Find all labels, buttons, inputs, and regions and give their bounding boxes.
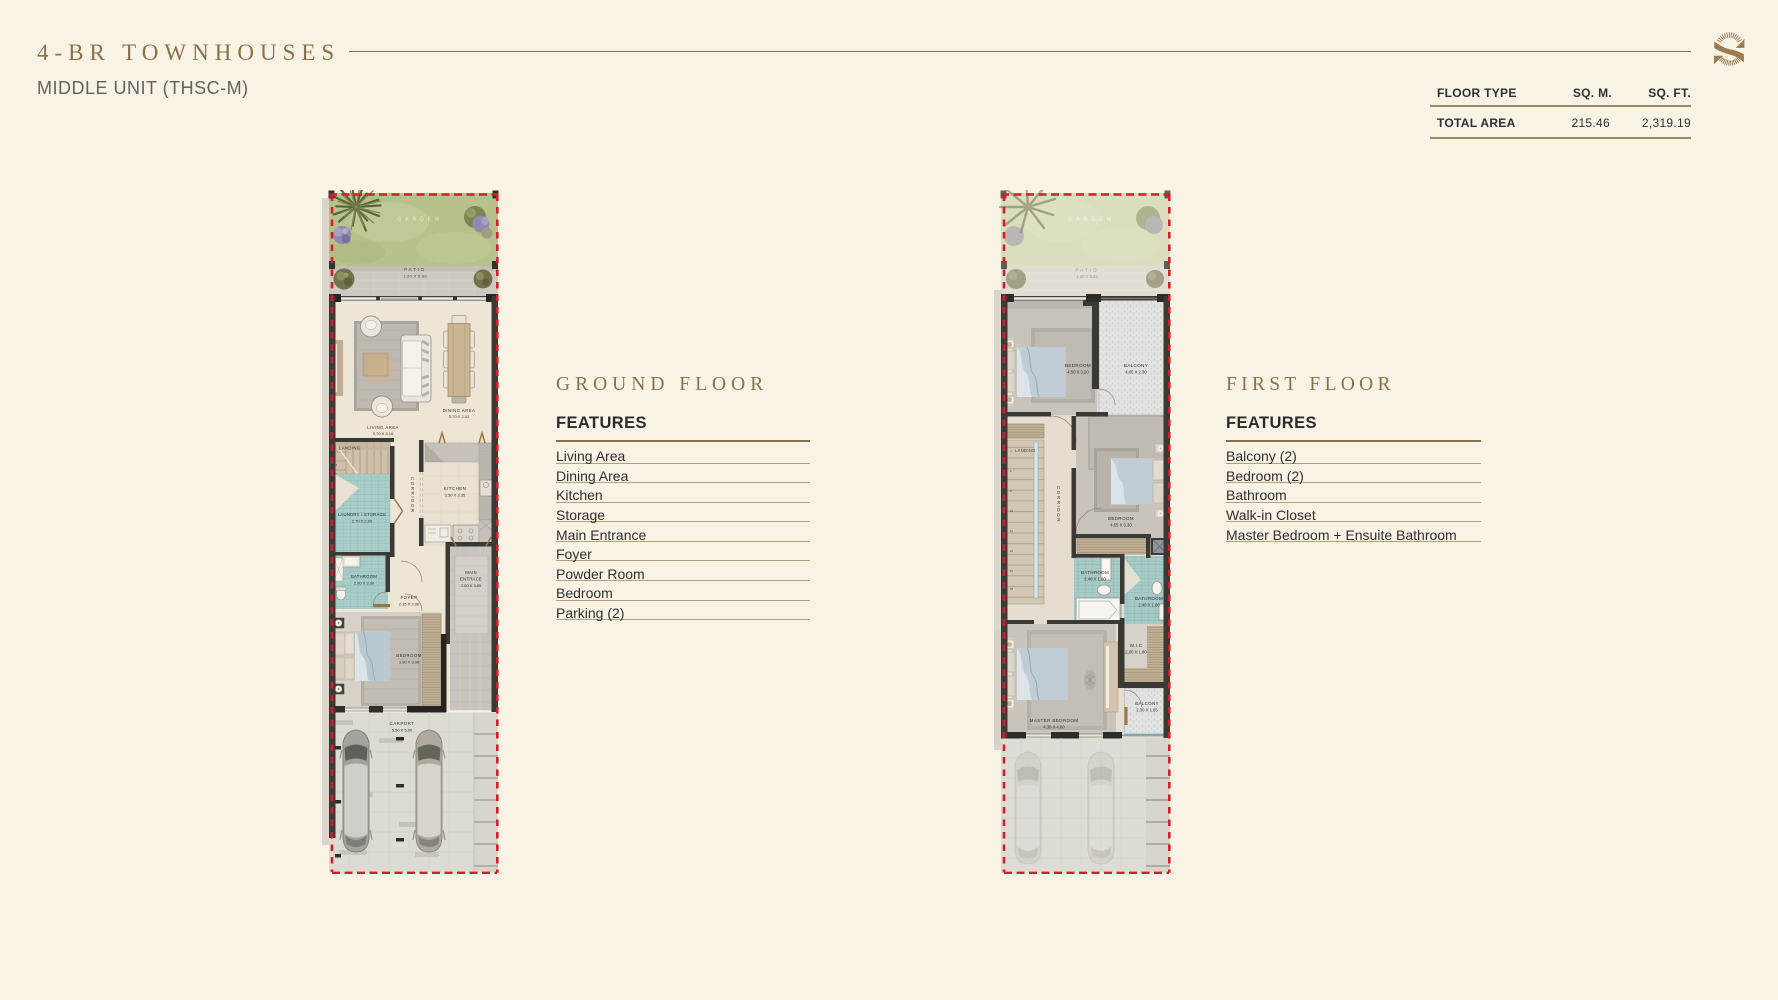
- svg-text:5.70 X 3.18: 5.70 X 3.18: [373, 431, 394, 436]
- svg-text:3.90 X 3.90: 3.90 X 3.90: [399, 660, 420, 665]
- svg-text:CORRIDOR: CORRIDOR: [410, 477, 415, 514]
- svg-text:BEDROOM: BEDROOM: [396, 653, 422, 658]
- svg-text:DINING AREA: DINING AREA: [443, 408, 476, 413]
- svg-text:2.70 X 2.00: 2.70 X 2.00: [352, 519, 373, 524]
- svg-text:BALCONY: BALCONY: [1135, 701, 1159, 706]
- svg-text:LANDING: LANDING: [339, 446, 360, 451]
- svg-text:PATIO: PATIO: [404, 267, 426, 272]
- svg-text:4.50 X 3.20: 4.50 X 3.20: [1067, 370, 1089, 375]
- svg-text:LIVING AREA: LIVING AREA: [367, 425, 399, 430]
- svg-text:12: 12: [1010, 529, 1014, 533]
- svg-text:2.40 X 1.60: 2.40 X 1.60: [1138, 603, 1160, 608]
- svg-text:5.70 X 2.42: 5.70 X 2.42: [449, 414, 470, 419]
- svg-text:MAIN: MAIN: [465, 570, 477, 575]
- svg-text:10: 10: [1010, 509, 1014, 513]
- svg-text:2.00 X 2.00: 2.00 X 2.00: [354, 581, 375, 586]
- svg-text:GARDEN: GARDEN: [397, 217, 442, 223]
- svg-text:CORRIDOR: CORRIDOR: [1056, 486, 1061, 523]
- svg-text:1.20 X 5.90: 1.20 X 5.90: [403, 274, 427, 279]
- svg-text:4.65 X 2.30: 4.65 X 2.30: [1125, 370, 1147, 375]
- svg-text:GARDEN: GARDEN: [1068, 217, 1115, 223]
- svg-text:BATHROOM: BATHROOM: [351, 574, 377, 579]
- svg-text:BATHROOM: BATHROOM: [1081, 570, 1109, 575]
- svg-text:LAUNDRY / STORAGE: LAUNDRY / STORAGE: [338, 512, 386, 517]
- svg-text:CARPORT: CARPORT: [390, 721, 415, 726]
- svg-text:BEDROOM: BEDROOM: [1108, 516, 1134, 521]
- svg-text:KITCHEN: KITCHEN: [444, 486, 467, 491]
- svg-text:2.15 X 2.00: 2.15 X 2.00: [399, 602, 420, 607]
- svg-text:BALCONY: BALCONY: [1124, 363, 1148, 368]
- svg-text:BATHROOM: BATHROOM: [1135, 596, 1163, 601]
- svg-text:5.50 X 5.00: 5.50 X 5.00: [392, 728, 413, 733]
- svg-text:ENTRACE: ENTRACE: [460, 577, 482, 582]
- svg-text:2.00 X 5.85: 2.00 X 5.85: [461, 583, 482, 588]
- svg-text:1.20 X 5.62: 1.20 X 5.62: [1076, 274, 1098, 279]
- svg-text:4.30 X 4.00: 4.30 X 4.00: [1043, 725, 1065, 730]
- svg-text:16: 16: [1010, 569, 1014, 573]
- svg-text:3.50 X 2.35: 3.50 X 2.35: [445, 493, 466, 498]
- svg-text:LANDING: LANDING: [1015, 448, 1036, 453]
- svg-text:2.00 X 1.80: 2.00 X 1.80: [1125, 650, 1147, 655]
- svg-text:4.55 X 3.30: 4.55 X 3.30: [1110, 523, 1132, 528]
- svg-text:W.I.C: W.I.C: [1130, 643, 1143, 648]
- svg-text:18: 18: [1010, 587, 1014, 591]
- svg-text:2.40 X 1.60: 2.40 X 1.60: [1084, 577, 1106, 582]
- svg-text:PATIO: PATIO: [1075, 268, 1098, 273]
- svg-text:2.30 X 1.65: 2.30 X 1.65: [1136, 708, 1158, 713]
- svg-text:MASTER BEDROOM: MASTER BEDROOM: [1030, 718, 1079, 723]
- svg-text:BEDROOM: BEDROOM: [1065, 363, 1091, 368]
- svg-text:14: 14: [1010, 549, 1014, 553]
